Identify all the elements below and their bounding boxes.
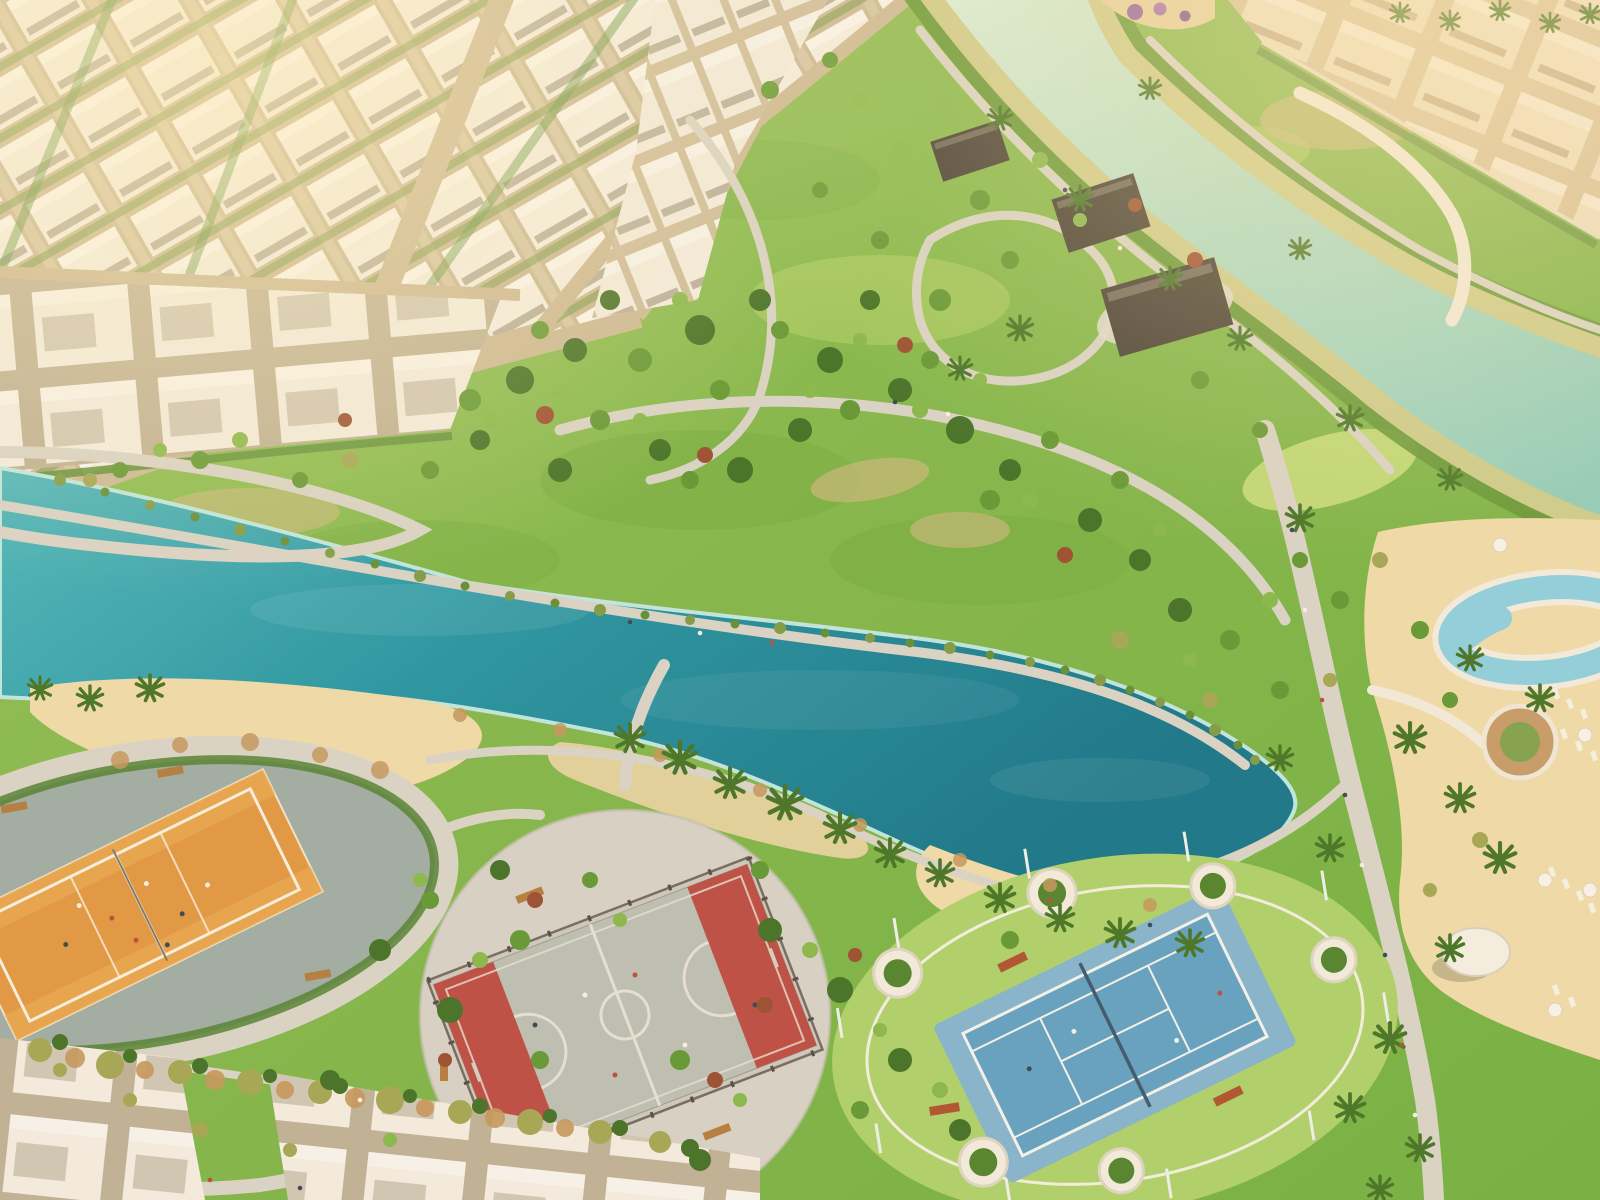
aerial-render-canvas: Golden-hour aerial rendering of a master…: [0, 0, 1600, 1200]
sunlight-glare: [0, 0, 1600, 1200]
aerial-render: Golden-hour aerial rendering of a master…: [0, 0, 1600, 1200]
